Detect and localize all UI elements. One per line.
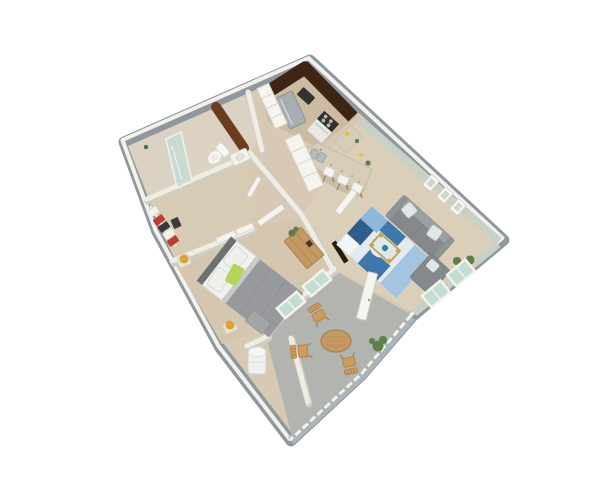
floor-plan-render: 3D isometric floor plan render — one bed…: [0, 0, 600, 497]
shelf-bottle: [144, 145, 148, 149]
amber-lamp: [179, 254, 190, 265]
amber-lamp: [225, 320, 236, 331]
round-wood-table: [321, 330, 351, 352]
balcony-door-knob: [368, 299, 370, 301]
bar-lemon: [359, 153, 363, 157]
bar-plant: [365, 160, 370, 165]
floor-plan-canvas: [0, 0, 600, 497]
counter-plant: [355, 139, 359, 143]
cutting-board: [345, 132, 350, 137]
water-heater: [248, 347, 266, 374]
